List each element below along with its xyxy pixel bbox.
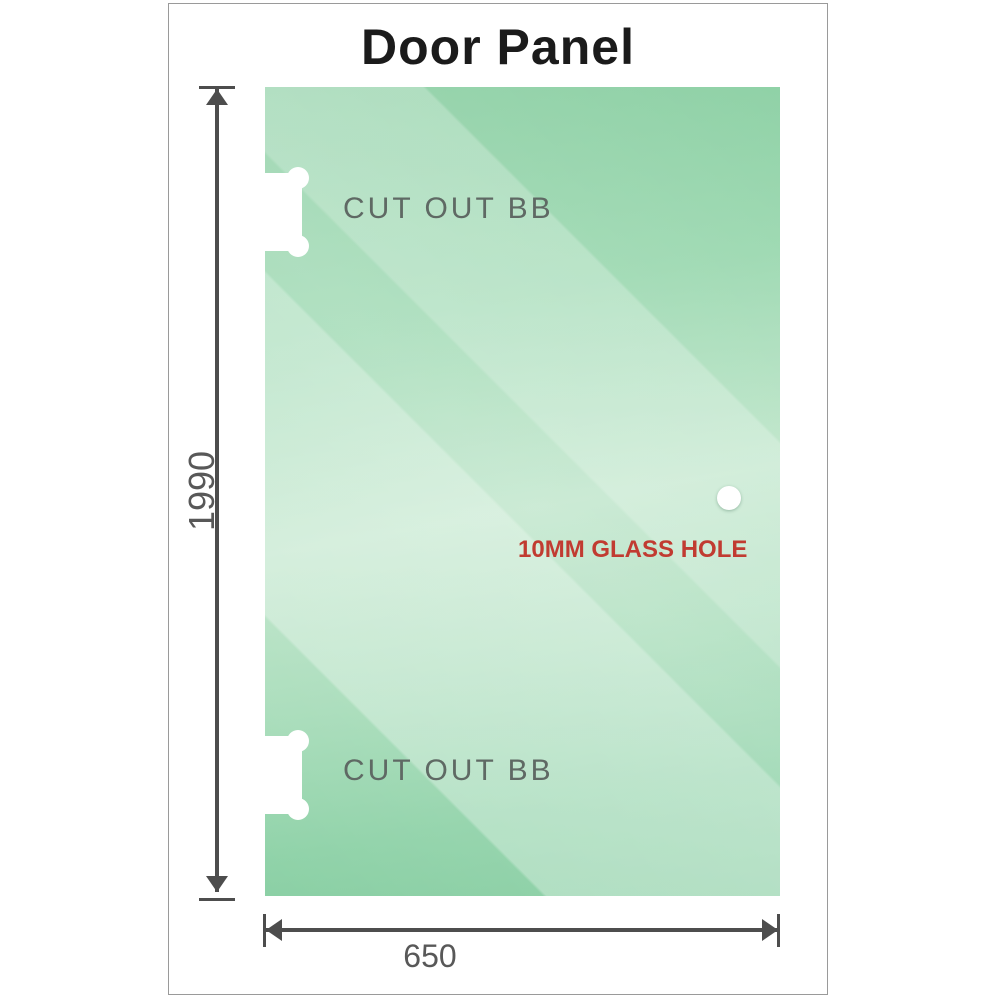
width-dimension-line	[266, 928, 778, 932]
arrow-up-icon	[206, 89, 228, 105]
arrow-right-icon	[762, 919, 778, 941]
dimension-tick-bottom	[199, 898, 235, 901]
cutout-shape-icon	[257, 167, 311, 257]
height-dimension-label: 1990	[182, 431, 222, 551]
cutout-top	[257, 167, 311, 257]
cutout-bottom	[257, 730, 311, 820]
arrow-down-icon	[206, 876, 228, 892]
glass-hole-label: 10MM GLASS HOLE	[518, 537, 747, 563]
page-title: Door Panel	[169, 18, 827, 76]
cutout-label-bottom: CUT OUT BB	[343, 756, 554, 786]
diagram-frame: Door Panel CUT OUT BB CUT OUT BB	[168, 3, 828, 995]
glass-hole	[717, 486, 741, 510]
arrow-left-icon	[266, 919, 282, 941]
cutout-label-top: CUT OUT BB	[343, 194, 554, 224]
glass-panel: CUT OUT BB CUT OUT BB 10MM GLASS HOLE	[265, 87, 780, 896]
cutout-shape-icon	[257, 730, 311, 820]
diagram-canvas: Door Panel CUT OUT BB CUT OUT BB	[0, 0, 1000, 1000]
width-dimension-label: 650	[370, 938, 490, 974]
